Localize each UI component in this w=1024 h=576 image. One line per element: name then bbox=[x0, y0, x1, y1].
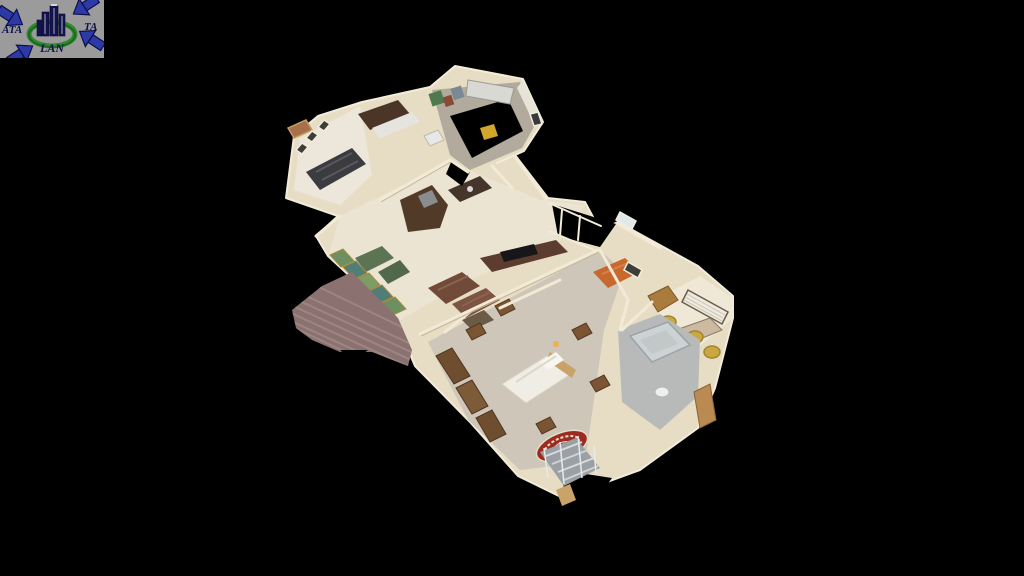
dollhouse-model[interactable] bbox=[0, 0, 1024, 576]
office-chair-3 bbox=[704, 346, 720, 358]
deck-scan-bite-2 bbox=[340, 350, 368, 362]
toilet bbox=[655, 387, 669, 397]
logo-text-left: ATA bbox=[1, 24, 22, 36]
bedside-lamp bbox=[553, 341, 559, 347]
logo-text-bottom: LAN bbox=[39, 41, 65, 55]
brand-logo: ATA TA LAN bbox=[0, 0, 104, 58]
sink bbox=[467, 186, 473, 192]
logo-text-right: TA bbox=[84, 21, 97, 33]
tour-viewport[interactable]: ATA TA LAN bbox=[0, 0, 1024, 576]
